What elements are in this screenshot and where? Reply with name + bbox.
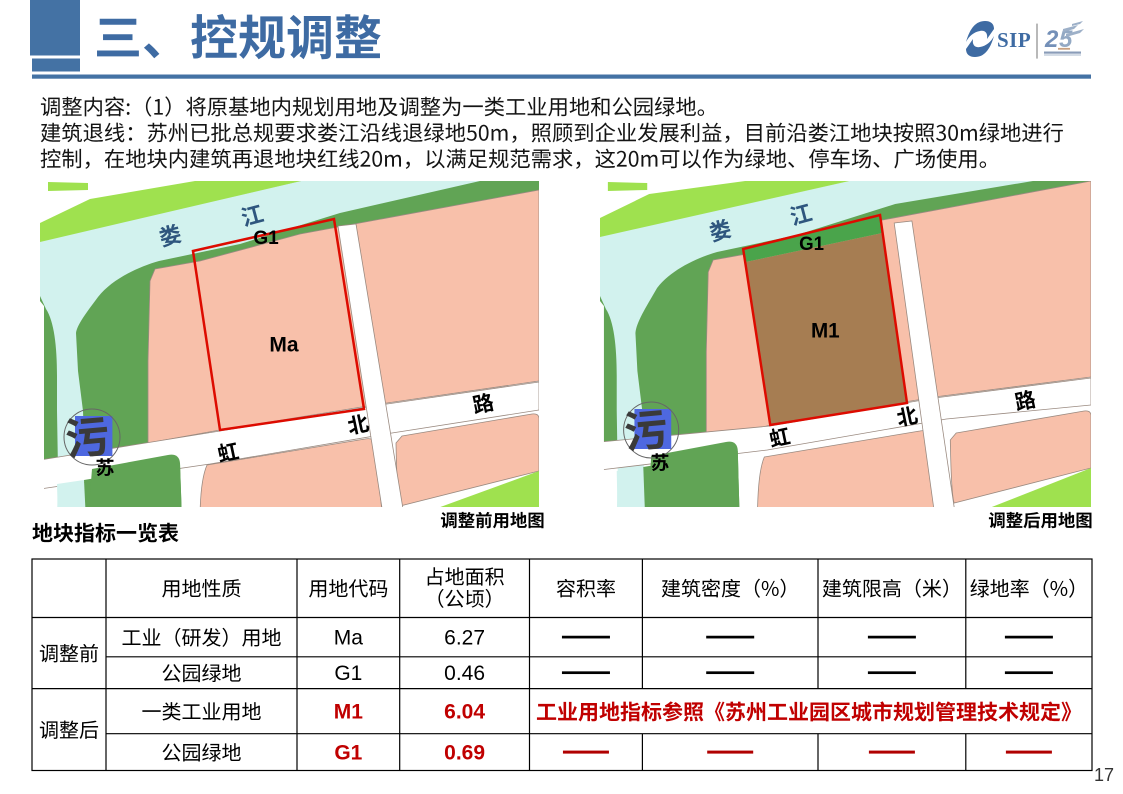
- svg-text:G1: G1: [253, 228, 279, 249]
- svg-text:Ma: Ma: [269, 333, 298, 356]
- svg-text:0.69: 0.69: [444, 742, 485, 765]
- svg-text:G1: G1: [799, 233, 824, 254]
- svg-text:M1: M1: [334, 701, 363, 724]
- svg-text:6.27: 6.27: [444, 627, 485, 650]
- svg-text:6.04: 6.04: [444, 701, 485, 724]
- svg-text:2: 2: [1044, 26, 1059, 53]
- svg-text:SIP: SIP: [997, 28, 1031, 52]
- svg-text:M1: M1: [811, 319, 840, 342]
- svg-text:G1: G1: [334, 662, 362, 685]
- svg-text:0.46: 0.46: [444, 662, 485, 685]
- svg-text:17: 17: [1094, 765, 1114, 785]
- svg-text:G1: G1: [334, 742, 362, 765]
- svg-text:Ma: Ma: [334, 627, 363, 650]
